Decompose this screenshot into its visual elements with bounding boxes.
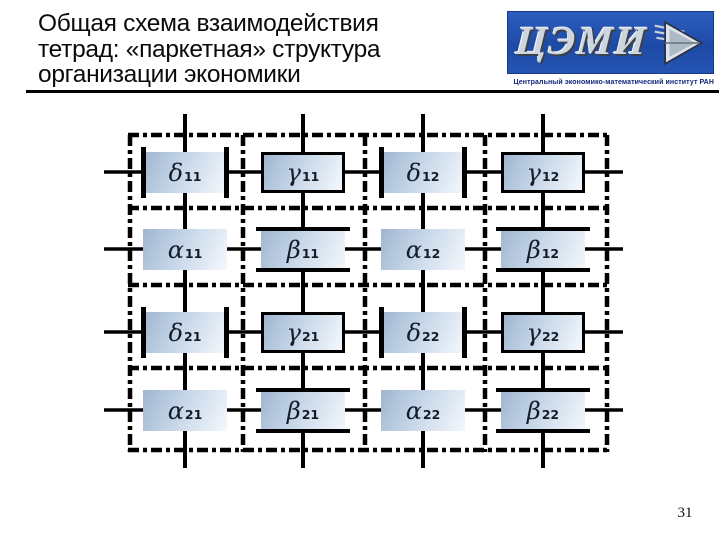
tetrad-diagram-lines: [0, 0, 720, 540]
box-subscript: 11: [302, 169, 319, 184]
box-letter: δ: [169, 321, 183, 345]
box-gamma-12: γ12: [501, 152, 585, 193]
box-gamma-11: γ11: [261, 152, 345, 193]
box-subscript: 21: [302, 407, 319, 422]
box-subscript: 21: [302, 329, 319, 344]
box-letter: α: [168, 238, 184, 262]
box-subscript: 12: [542, 246, 559, 261]
box-alpha-12: α12: [381, 229, 465, 270]
box-beta-22: β22: [501, 390, 585, 431]
box-delta-12: δ12: [381, 152, 465, 193]
box-letter: β: [527, 399, 541, 423]
box-gamma-22: γ22: [501, 312, 585, 353]
box-beta-12: β12: [501, 229, 585, 270]
box-subscript: 22: [422, 329, 439, 344]
box-delta-22: δ22: [381, 312, 465, 353]
box-letter: γ: [287, 321, 301, 345]
box-subscript: 12: [423, 246, 440, 261]
box-letter: β: [287, 238, 301, 262]
box-letter: δ: [169, 161, 183, 185]
box-alpha-21: α21: [143, 390, 227, 431]
box-letter: δ: [407, 161, 421, 185]
box-beta-11: β11: [261, 229, 345, 270]
box-subscript: 11: [302, 246, 319, 261]
box-subscript: 21: [185, 407, 202, 422]
box-alpha-11: α11: [143, 229, 227, 270]
box-letter: β: [527, 238, 541, 262]
box-letter: α: [406, 399, 422, 423]
box-letter: γ: [287, 161, 301, 185]
box-letter: γ: [527, 161, 541, 185]
box-subscript: 22: [542, 329, 559, 344]
box-subscript: 12: [542, 169, 559, 184]
box-subscript: 12: [422, 169, 439, 184]
box-letter: δ: [407, 321, 421, 345]
box-subscript: 22: [423, 407, 440, 422]
box-subscript: 22: [542, 407, 559, 422]
box-letter: α: [406, 238, 422, 262]
box-letter: γ: [527, 321, 541, 345]
box-letter: α: [168, 399, 184, 423]
box-letter: β: [287, 399, 301, 423]
box-alpha-22: α22: [381, 390, 465, 431]
box-delta-11: δ11: [143, 152, 227, 193]
box-delta-21: δ21: [143, 312, 227, 353]
box-beta-21: β21: [261, 390, 345, 431]
box-gamma-21: γ21: [261, 312, 345, 353]
box-subscript: 21: [184, 329, 201, 344]
box-subscript: 11: [185, 246, 202, 261]
box-subscript: 11: [184, 169, 201, 184]
